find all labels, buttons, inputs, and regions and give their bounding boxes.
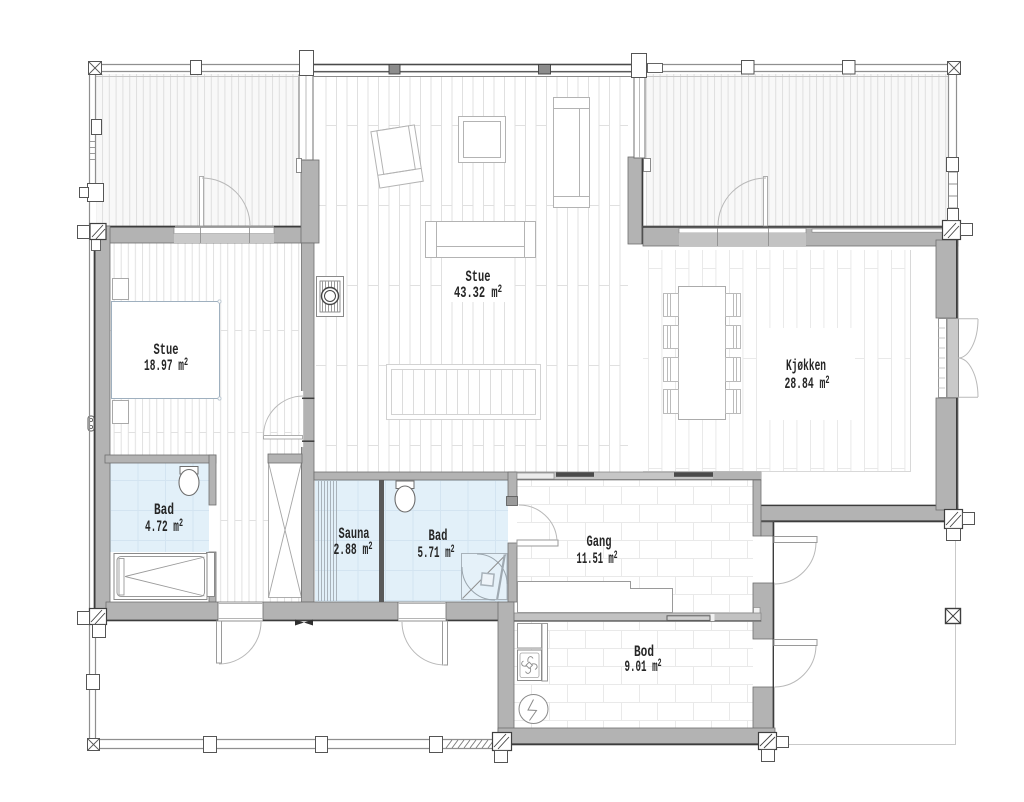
svg-text:43.32 m2: 43.32 m2 (454, 284, 502, 302)
svg-text:Bad: Bad (154, 501, 174, 519)
svg-text:Kjøkken: Kjøkken (786, 357, 826, 375)
svg-text:28.84 m2: 28.84 m2 (785, 375, 830, 393)
svg-text:18.97 m2: 18.97 m2 (144, 357, 188, 375)
svg-text:Gang: Gang (587, 533, 612, 551)
svg-text:9.01 m2: 9.01 m2 (625, 658, 662, 676)
svg-text:11.51 m2: 11.51 m2 (577, 550, 618, 568)
svg-text:2.88 m2: 2.88 m2 (334, 541, 373, 559)
svg-text:Bad: Bad (429, 527, 448, 545)
svg-text:4.72 m2: 4.72 m2 (145, 518, 183, 536)
svg-text:5.71 m2: 5.71 m2 (418, 544, 455, 562)
